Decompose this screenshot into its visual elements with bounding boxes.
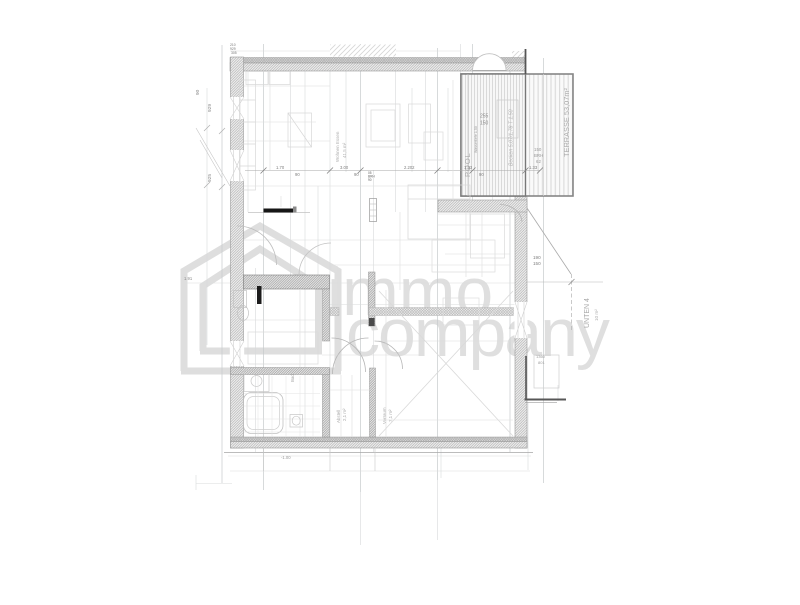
svg-text:62: 62 xyxy=(536,159,541,164)
svg-text:90: 90 xyxy=(479,172,484,177)
svg-text:10 m²: 10 m² xyxy=(594,309,599,321)
svg-text:90: 90 xyxy=(195,89,201,95)
svg-text:801: 801 xyxy=(538,360,545,365)
svg-text:1.70: 1.70 xyxy=(276,165,285,170)
svg-text:255: 255 xyxy=(480,114,489,120)
svg-text:Bad: Bad xyxy=(290,374,295,382)
svg-text:150: 150 xyxy=(534,147,542,152)
svg-text:90: 90 xyxy=(354,172,359,177)
svg-text:company: company xyxy=(346,295,610,371)
svg-text:2,1 m²: 2,1 m² xyxy=(342,408,347,421)
svg-text:1360: 1360 xyxy=(536,354,546,359)
svg-text:BRH: BRH xyxy=(534,153,543,158)
svg-text:2.202: 2.202 xyxy=(404,165,415,170)
svg-text:925: 925 xyxy=(207,174,213,182)
svg-text:3.00: 3.00 xyxy=(340,165,349,170)
svg-text:150: 150 xyxy=(480,121,489,127)
svg-text:Abstell: Abstell xyxy=(336,410,341,423)
svg-text:Wassertiefe 1,50: Wassertiefe 1,50 xyxy=(474,126,478,153)
svg-text:150: 150 xyxy=(533,261,541,266)
svg-text:929: 929 xyxy=(207,104,213,112)
svg-text:Wohnen Essen: Wohnen Essen xyxy=(335,131,340,162)
svg-text:-1.00: -1.00 xyxy=(281,455,291,460)
svg-text:190: 190 xyxy=(533,255,541,260)
svg-text:1.91: 1.91 xyxy=(184,276,193,281)
svg-text:1.33: 1.33 xyxy=(464,165,473,170)
svg-text:1.33: 1.33 xyxy=(529,165,538,170)
svg-text:TERRASSE 53,07m²: TERRASSE 53,07m² xyxy=(562,87,571,157)
svg-text:90: 90 xyxy=(368,178,372,182)
svg-text:41,5 m²: 41,5 m² xyxy=(342,142,347,158)
svg-text:90: 90 xyxy=(295,172,300,177)
svg-text:305: 305 xyxy=(231,51,237,55)
svg-text:UNTEN 4: UNTEN 4 xyxy=(584,298,591,328)
